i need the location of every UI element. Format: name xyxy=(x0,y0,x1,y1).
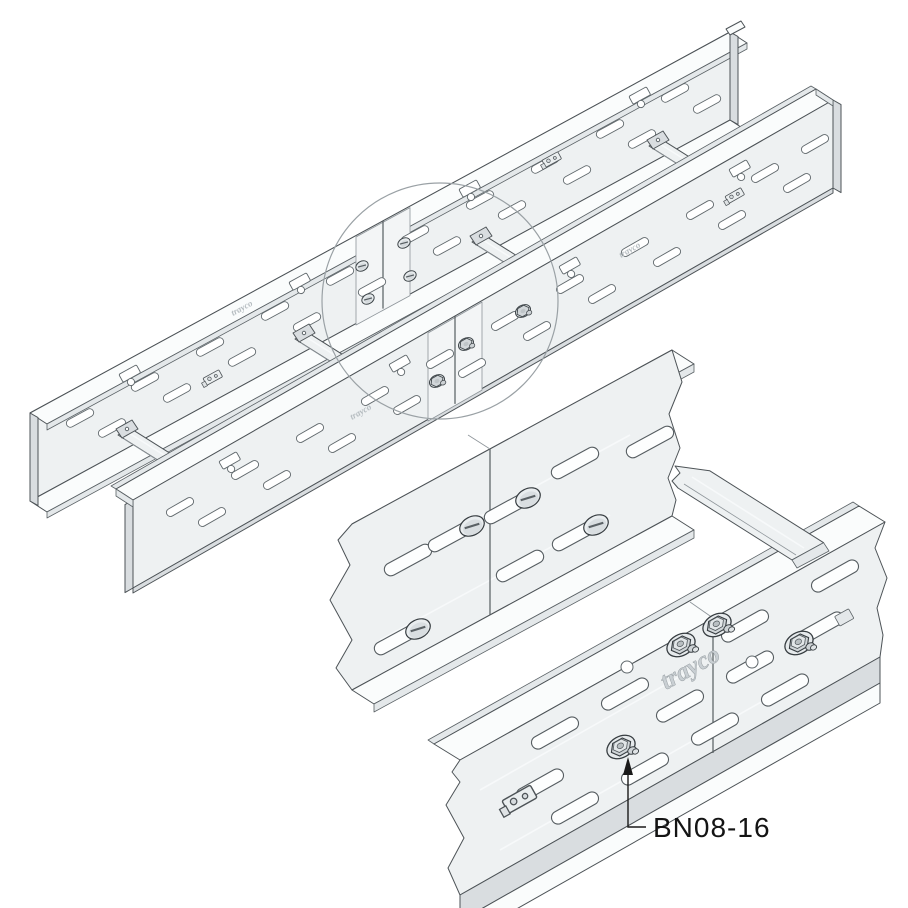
near-rail-left-end-cap xyxy=(125,500,133,593)
cable-ladder-splice-drawing: trayco xyxy=(0,0,908,908)
rung-bracket-hole xyxy=(125,427,128,430)
rung-highlight xyxy=(692,477,804,548)
near-rail-top-lip xyxy=(111,86,816,489)
rung-bracket-hole xyxy=(302,331,305,334)
round-hole xyxy=(746,656,758,668)
technical-illustration-page: trayco xyxy=(0,0,908,908)
rung-bracket-hole xyxy=(656,138,659,141)
part-number-label: BN08-16 xyxy=(653,812,771,843)
far-rail-right-end-tab xyxy=(726,21,745,35)
detail-far-seam-flange xyxy=(468,435,490,449)
round-hole xyxy=(621,661,633,673)
near-rail-top-flange xyxy=(116,89,833,500)
far-rail-right-end-cap xyxy=(730,32,738,125)
far-rail-left-end-cap xyxy=(30,413,38,506)
detail-assembly: trayco xyxy=(330,350,887,908)
near-rail-right-end-cap xyxy=(833,100,841,193)
rung-bracket-hole xyxy=(479,234,482,237)
detail-rung xyxy=(672,466,829,568)
